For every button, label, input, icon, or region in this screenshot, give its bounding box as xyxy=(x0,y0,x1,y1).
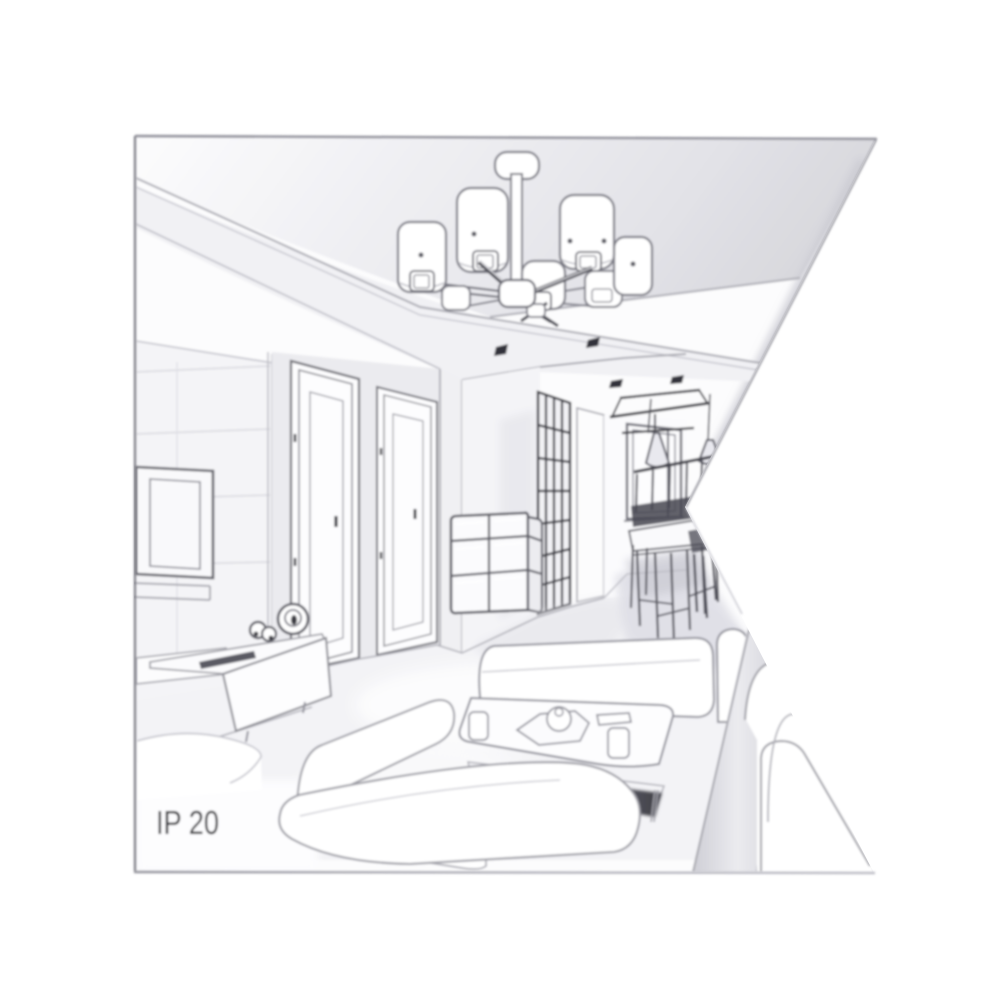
svg-text:IP 20: IP 20 xyxy=(156,804,219,841)
